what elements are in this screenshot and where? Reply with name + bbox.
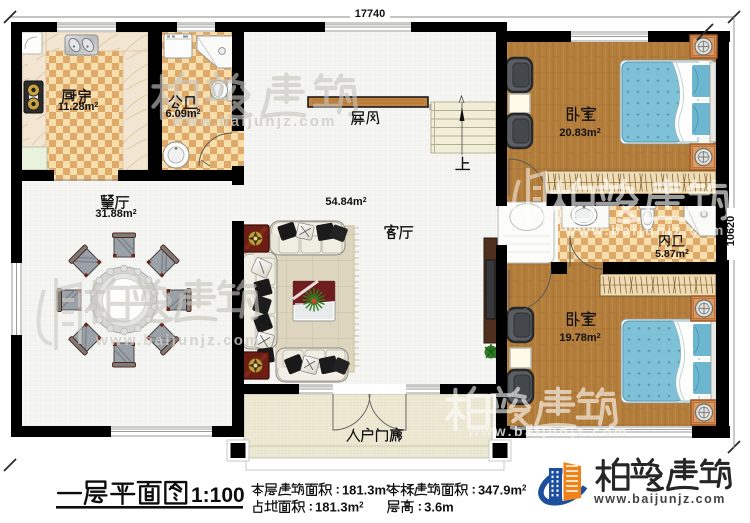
svg-text:www.baijunjz.com: www.baijunjz.com — [95, 332, 261, 349]
svg-text:www.baijunjz.com: www.baijunjz.com — [467, 423, 629, 439]
svg-text:181.3m2: 181.3m2 — [342, 483, 391, 498]
svg-text:www.baijunjz.com: www.baijunjz.com — [593, 492, 726, 506]
svg-text:347.9m2: 347.9m2 — [478, 483, 527, 498]
svg-text:10620: 10620 — [725, 216, 737, 247]
svg-text:31.88m2: 31.88m2 — [95, 208, 136, 220]
svg-text:54.84m2: 54.84m2 — [325, 196, 366, 208]
svg-text:181.3m2: 181.3m2 — [315, 500, 364, 515]
svg-text:11.28m2: 11.28m2 — [58, 101, 99, 113]
svg-text:1:100: 1:100 — [191, 484, 245, 507]
svg-text:3.6m: 3.6m — [424, 500, 454, 515]
svg-text:5.87m2: 5.87m2 — [655, 248, 689, 260]
svg-text:www.baijunjz.com: www.baijunjz.com — [564, 222, 726, 238]
svg-text:19.78m2: 19.78m2 — [559, 332, 600, 344]
svg-text:6.09m2: 6.09m2 — [165, 108, 200, 120]
svg-text:17740: 17740 — [355, 8, 386, 20]
svg-text:20.83m2: 20.83m2 — [559, 127, 600, 139]
